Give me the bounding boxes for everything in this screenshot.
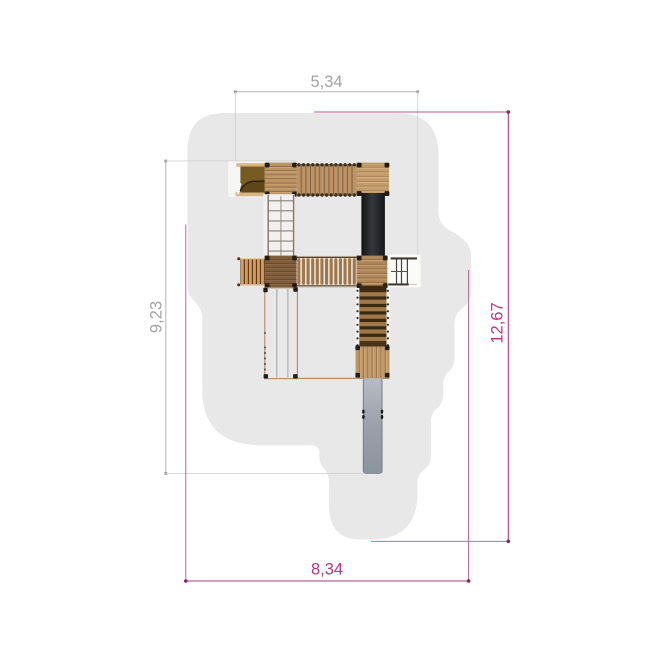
svg-text:12,67: 12,67: [489, 302, 507, 343]
svg-text:5,34: 5,34: [310, 73, 342, 91]
svg-text:8,34: 8,34: [311, 561, 343, 579]
svg-text:9,23: 9,23: [148, 301, 166, 333]
